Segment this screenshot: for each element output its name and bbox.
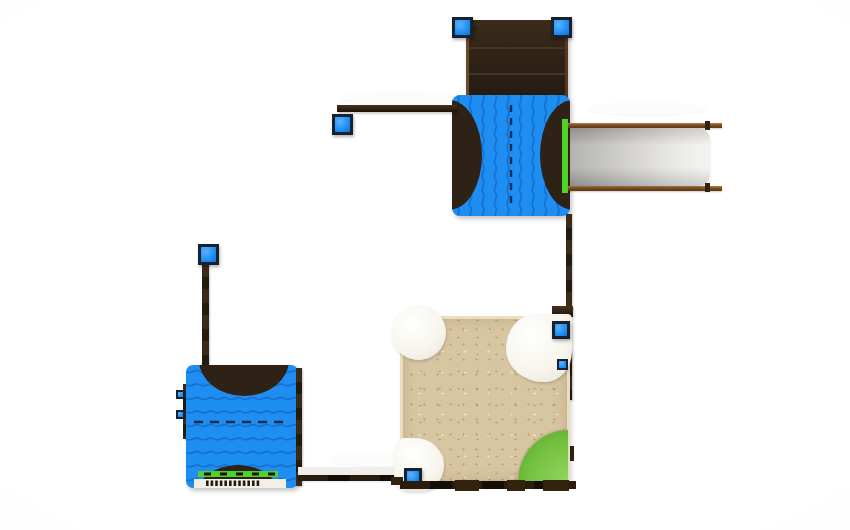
roof-ridge: [469, 47, 565, 49]
beam-bracket: [455, 480, 479, 491]
panel-hinge-tab: [176, 410, 185, 419]
wave-climber-lower-graphic: [186, 365, 298, 488]
soft-highlight: [342, 90, 458, 105]
border-post-left: [202, 263, 209, 366]
post-cap-sandbox-top-right: [552, 321, 570, 339]
slide-entry-strip: [562, 119, 568, 193]
border-beam-right-upper: [566, 214, 572, 310]
post-cap-small: [557, 359, 568, 370]
slide-bed: [570, 128, 710, 186]
post-cap-top-right: [551, 17, 572, 38]
slide-rail-bottom: [568, 186, 722, 191]
slide-rail-bracket: [705, 121, 710, 130]
roof-ridge: [469, 73, 565, 75]
slide-rail-bracket: [705, 183, 710, 192]
wood-beam-top-left: [337, 105, 457, 112]
play-table-round: [391, 305, 446, 360]
wave-climber-lower: [186, 365, 298, 488]
wave-climber-top: [452, 95, 570, 216]
post-cap-left: [198, 244, 219, 265]
panel-hinge-tab: [176, 390, 185, 399]
grass-quarter-circle: [518, 430, 568, 482]
beam-bracket: [543, 480, 569, 491]
post-cap-beam-left: [332, 114, 353, 135]
post-cap-top-left: [452, 17, 473, 38]
beam-bracket: [507, 480, 525, 491]
wave-climber-top-graphic: [452, 95, 570, 216]
sandbox: [400, 316, 570, 484]
soft-highlight: [586, 102, 706, 115]
playground-plan-render: [0, 0, 850, 530]
